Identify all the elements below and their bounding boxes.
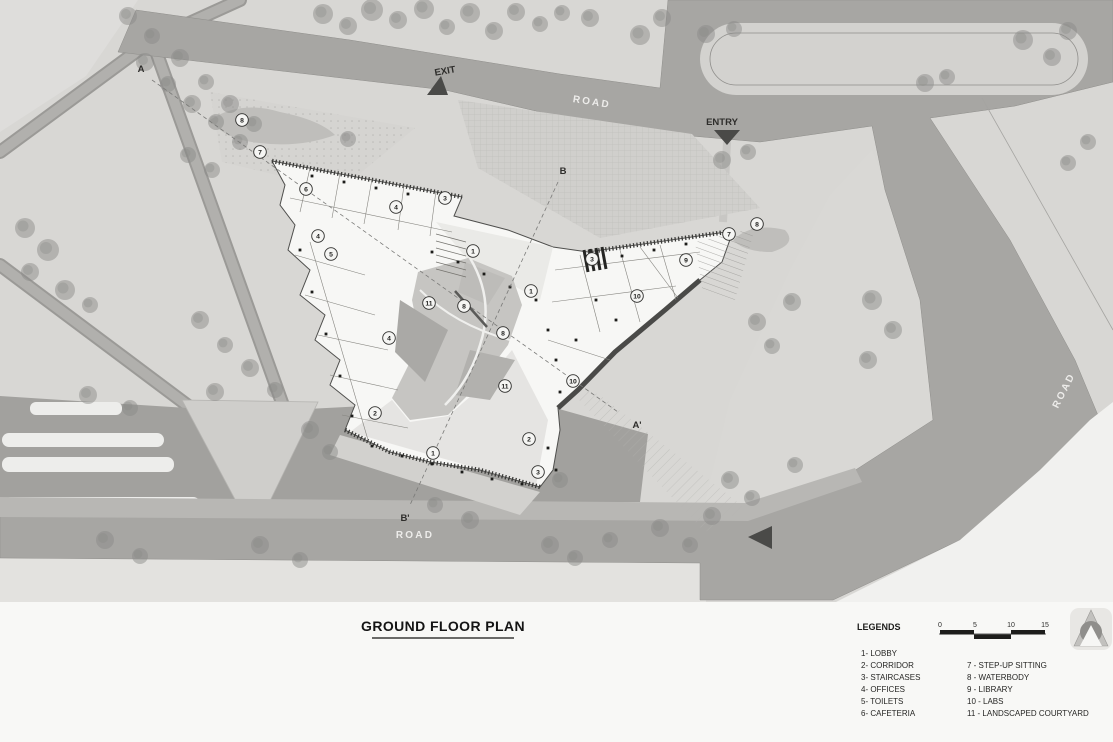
section-label-a-prime: A' [632, 420, 641, 431]
scale-tick: 10 [1007, 622, 1015, 629]
plan-marker: 4 [383, 332, 396, 345]
plan-marker: 4 [390, 201, 403, 214]
legend-item: 2- CORRIDOR [861, 661, 914, 670]
plan-marker: 8 [236, 114, 249, 127]
svg-text:7: 7 [727, 231, 731, 238]
legend-item: 11 - LANDSCAPED COURTYARD [967, 709, 1089, 718]
plan-marker: 8 [458, 300, 471, 313]
svg-text:10: 10 [633, 293, 641, 300]
site-plan-drawing: A B A' B' EXIT ENTRY ROAD ROAD ROAD 8764… [0, 0, 1113, 742]
svg-text:8: 8 [462, 303, 466, 310]
legend-heading: LEGENDS [857, 622, 901, 632]
svg-text:1: 1 [529, 288, 533, 295]
legend-item: 4- OFFICES [861, 685, 905, 694]
plan-marker: 3 [586, 253, 599, 266]
svg-text:11: 11 [425, 300, 432, 307]
svg-text:4: 4 [316, 233, 320, 240]
plan-marker: 3 [532, 466, 545, 479]
section-label-b-prime: B' [400, 513, 409, 524]
plan-marker: 8 [751, 218, 764, 231]
legend-item: 9 - LIBRARY [967, 685, 1013, 694]
plan-marker: 8 [497, 327, 510, 340]
svg-text:6: 6 [304, 186, 308, 193]
plan-marker: 3 [439, 192, 452, 205]
plan-marker: 10 [631, 290, 644, 303]
svg-text:8: 8 [240, 117, 244, 124]
plan-marker: 1 [427, 447, 440, 460]
annotation-band: GROUND FLOOR PLAN LEGENDS 1- LOBBY 2- CO… [0, 602, 1113, 742]
svg-text:8: 8 [501, 330, 505, 337]
svg-text:4: 4 [394, 204, 398, 211]
plan-marker: 5 [325, 248, 338, 261]
plan-marker: 9 [680, 254, 693, 267]
plan-marker: 7 [254, 146, 267, 159]
plan-marker: 11 [499, 380, 512, 393]
svg-text:1: 1 [431, 450, 435, 457]
plan-marker: 7 [723, 228, 736, 241]
plan-marker: 4 [312, 230, 325, 243]
section-label-b: B [560, 166, 567, 177]
plan-marker: 1 [467, 245, 480, 258]
svg-text:8: 8 [755, 221, 759, 228]
legend-item: 5- TOILETS [861, 697, 903, 706]
svg-text:3: 3 [536, 469, 540, 476]
page-title: GROUND FLOOR PLAN [361, 618, 525, 634]
plan-marker: 11 [423, 297, 436, 310]
scale-tick: 0 [938, 622, 942, 629]
legend-item: 6- CAFETERIA [861, 709, 916, 718]
road-label-bottom: ROAD [396, 530, 434, 541]
scale-tick: 5 [973, 622, 977, 629]
svg-text:2: 2 [373, 410, 377, 417]
entry-label: ENTRY [706, 117, 739, 128]
plan-marker: 6 [300, 183, 313, 196]
scale-tick: 15 [1041, 622, 1049, 629]
legend-item: 1- LOBBY [861, 649, 898, 658]
legend-item: 8 - WATERBODY [967, 673, 1030, 682]
svg-text:3: 3 [590, 256, 594, 263]
plan-marker: 2 [369, 407, 382, 420]
svg-text:11: 11 [501, 383, 508, 390]
legend-item: 10 - LABS [967, 697, 1003, 706]
svg-text:1: 1 [471, 248, 475, 255]
legend-item: 7 - STEP-UP SITTING [967, 661, 1047, 670]
svg-text:5: 5 [329, 251, 333, 258]
section-label-a: A [138, 64, 145, 75]
svg-text:9: 9 [684, 257, 688, 264]
plan-marker: 2 [523, 433, 536, 446]
site-plan-page: A B A' B' EXIT ENTRY ROAD ROAD ROAD 8764… [0, 0, 1113, 742]
north-arrow-icon [1070, 608, 1112, 650]
plan-marker: 1 [525, 285, 538, 298]
svg-text:4: 4 [387, 335, 391, 342]
svg-text:3: 3 [443, 195, 447, 202]
svg-text:7: 7 [258, 149, 262, 156]
svg-text:10: 10 [569, 378, 577, 385]
plan-marker: 10 [567, 375, 580, 388]
svg-text:2: 2 [527, 436, 531, 443]
legend-item: 3- STAIRCASES [861, 673, 920, 682]
